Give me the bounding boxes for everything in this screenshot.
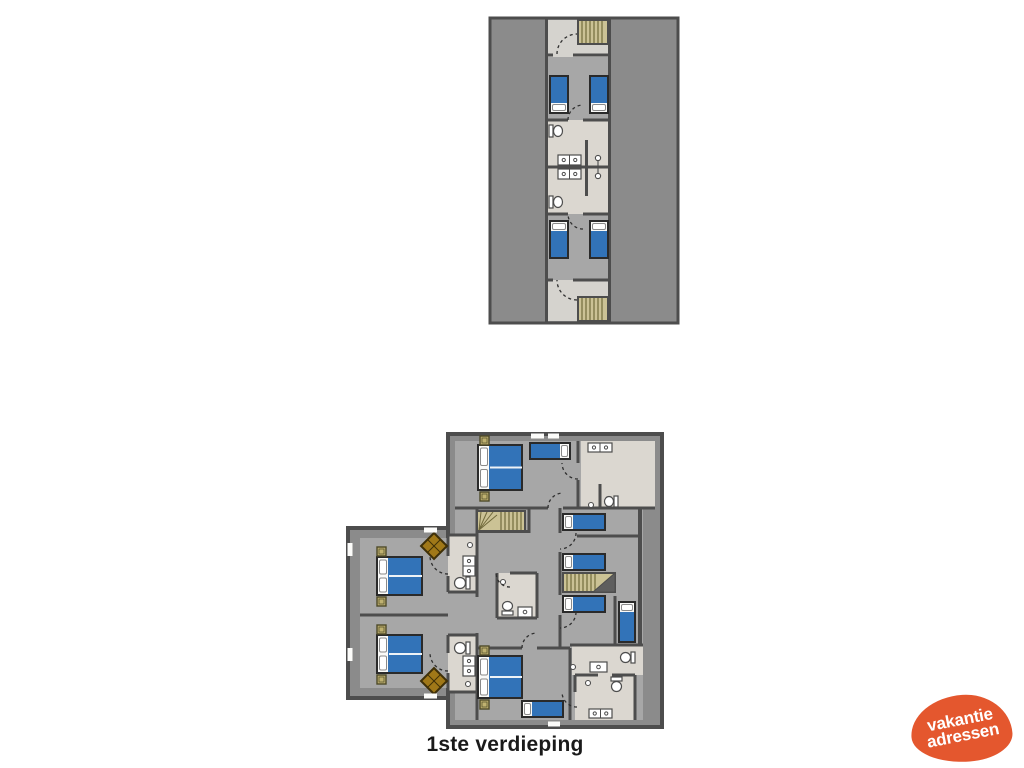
nightstand-icon (377, 597, 386, 606)
single-bed-icon (563, 596, 605, 612)
window (348, 543, 353, 556)
single-bed-icon (590, 221, 608, 258)
single-bed-icon (563, 514, 605, 530)
floorplan-image (0, 0, 1024, 768)
toilet-icon (455, 642, 471, 654)
door-knob-icon (466, 682, 471, 687)
toilet-icon (549, 125, 563, 137)
floor-label: 1ste verdieping (375, 733, 635, 757)
nightstand-icon (480, 700, 489, 709)
stairs-icon (563, 573, 615, 592)
single-bed-icon (530, 443, 570, 459)
nightstand-icon (377, 547, 386, 556)
page-background: 1ste verdieping vakantie adressen (0, 0, 1024, 768)
door-knob-icon (468, 543, 473, 548)
stairs-icon (578, 20, 608, 44)
double-bed-icon (377, 557, 422, 595)
toilet-icon (502, 602, 513, 616)
door-knob-icon (589, 503, 594, 508)
double-bed-icon (478, 445, 522, 490)
window (531, 434, 544, 439)
toilet-icon (549, 196, 563, 208)
double-bed-icon (377, 635, 422, 673)
first-floor-plan (348, 434, 663, 728)
toilet-icon (605, 496, 619, 507)
single-bed-icon (590, 76, 608, 113)
window (424, 694, 437, 699)
roof-strip (643, 508, 655, 720)
sink-icon (463, 656, 475, 676)
logo-text: vakantie adressen (923, 705, 1001, 749)
nightstand-icon (377, 675, 386, 684)
sink-icon (558, 155, 581, 165)
stairs-icon (477, 511, 525, 531)
toilet-icon (455, 577, 471, 589)
nightstand-icon (480, 492, 489, 501)
nightstand-icon (480, 646, 489, 655)
sink-icon (518, 607, 532, 617)
sink-icon (589, 709, 612, 718)
sink-icon (463, 556, 475, 576)
toilet-icon (621, 652, 636, 663)
sink-icon (558, 169, 581, 179)
window (548, 722, 560, 727)
door-knob-icon (586, 681, 591, 686)
window (548, 434, 559, 439)
stairs-icon (578, 297, 608, 321)
single-bed-icon (619, 602, 635, 642)
single-bed-icon (563, 554, 605, 570)
sink-icon (590, 662, 607, 672)
door-knob-icon (501, 580, 506, 585)
window (348, 648, 353, 661)
single-bed-icon (550, 76, 568, 113)
single-bed-icon (522, 701, 563, 717)
double-bed-icon (478, 656, 522, 698)
nightstand-icon (480, 436, 489, 445)
single-bed-icon (550, 221, 568, 258)
nightstand-icon (377, 625, 386, 634)
sink-icon (588, 443, 612, 452)
door-knob-icon (571, 665, 576, 670)
upper-floor-plan (490, 18, 678, 323)
toilet-icon (611, 677, 622, 692)
window (424, 528, 437, 533)
